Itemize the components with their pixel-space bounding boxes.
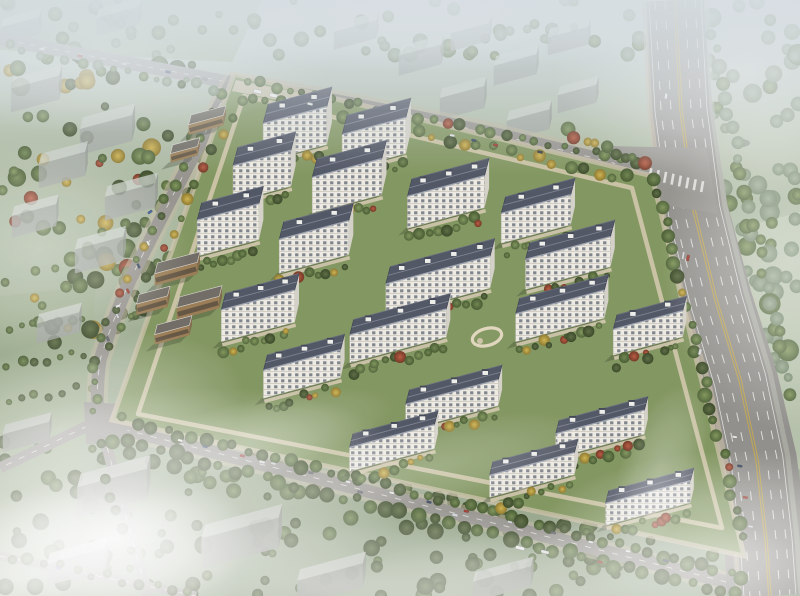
mist [0,0,800,596]
aerial-rendering-canvas [0,0,800,596]
aerial-rendering [0,0,800,596]
